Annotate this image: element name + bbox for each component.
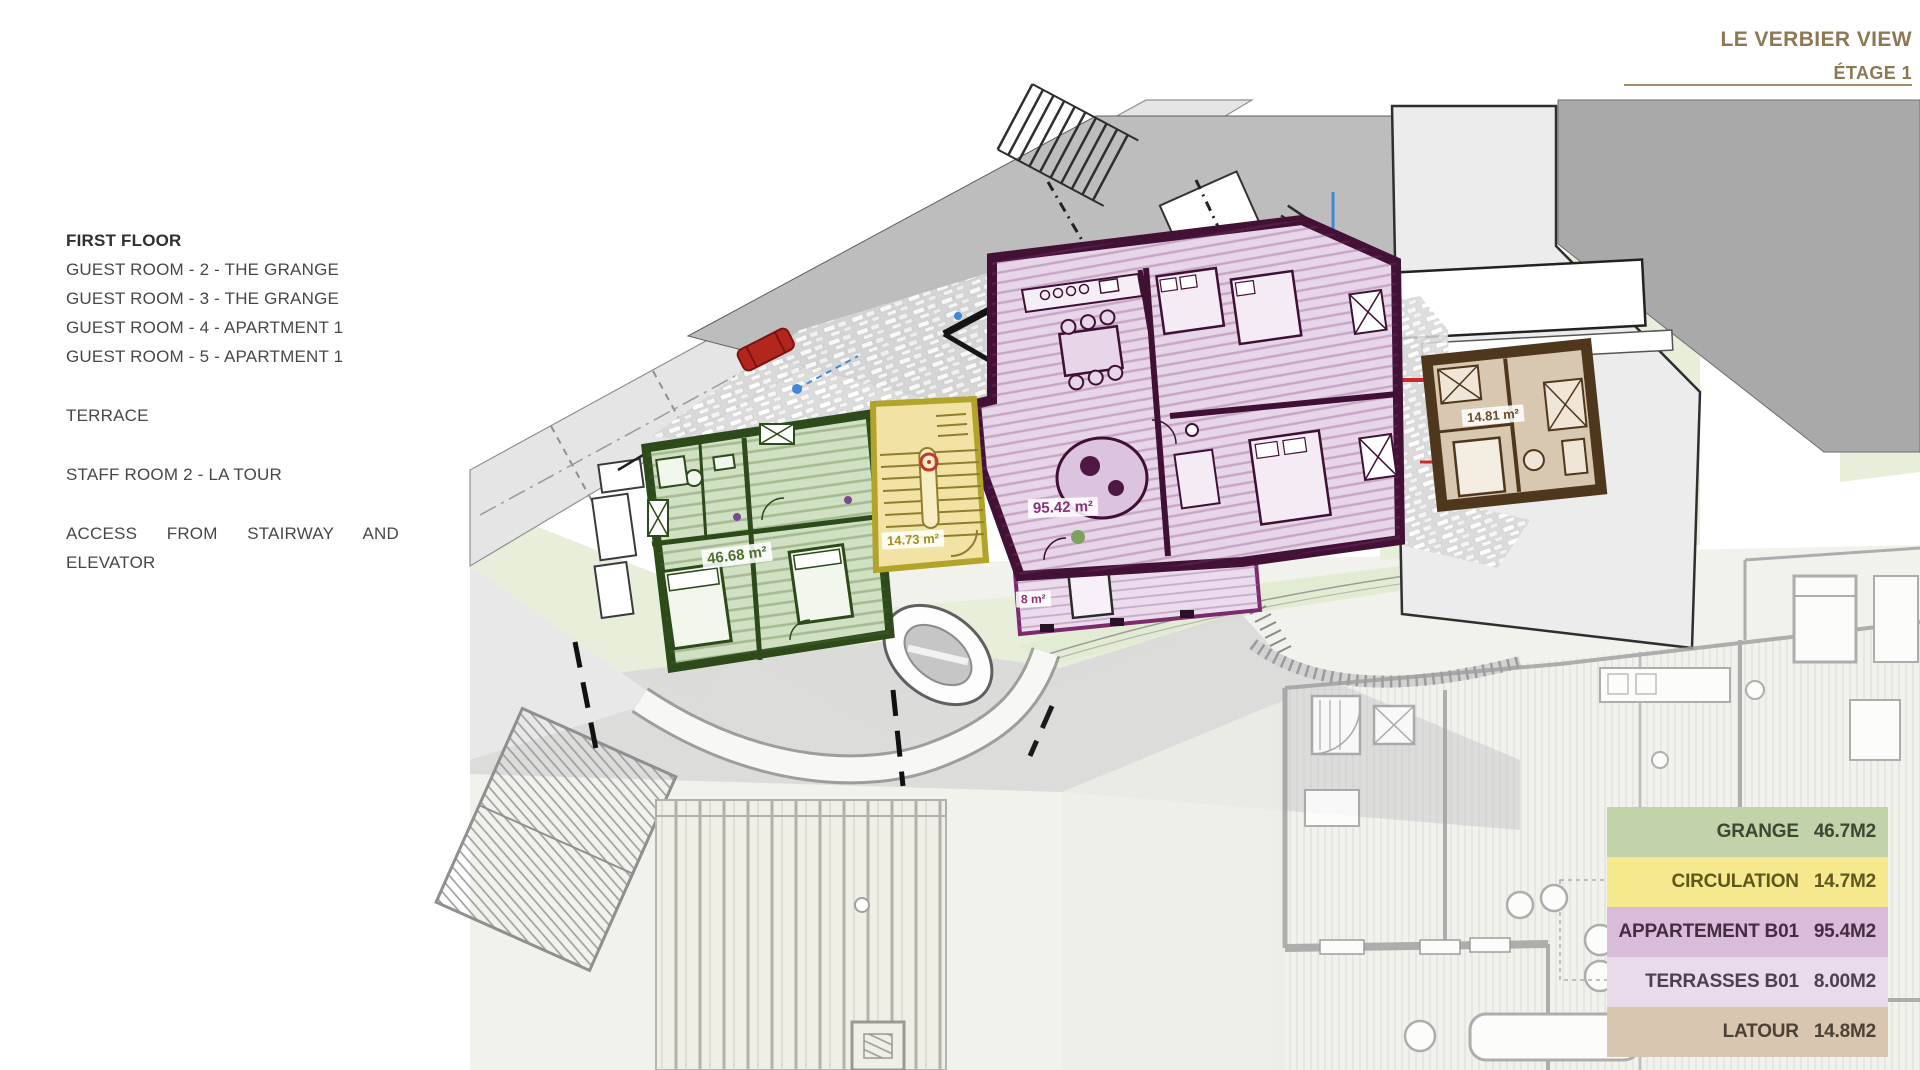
title-rule bbox=[1624, 84, 1912, 86]
floor-plan-page: LE VERBIER VIEW ÉTAGE 1 FIRST FLOOR GUES… bbox=[0, 0, 1920, 1070]
legend-label: APPARTEMENT B01 bbox=[1618, 921, 1798, 943]
legend-label: TERRASSES B01 bbox=[1645, 971, 1799, 993]
info-panel: FIRST FLOOR GUEST ROOM - 2 - THE GRANGE … bbox=[66, 226, 399, 577]
legend-value: 14.8M2 bbox=[1814, 1021, 1876, 1043]
legend-row-appartement: APPARTEMENT B01 95.4M2 bbox=[1607, 907, 1888, 957]
title-block: LE VERBIER VIEW ÉTAGE 1 bbox=[1720, 24, 1912, 84]
info-room-line: GUEST ROOM - 5 - APARTMENT 1 bbox=[66, 342, 399, 371]
floor-title: ÉTAGE 1 bbox=[1720, 63, 1912, 84]
circulation-area-label: 14.73 m² bbox=[882, 529, 945, 549]
legend-value: 14.7M2 bbox=[1814, 871, 1876, 893]
legend-row-terrasses: TERRASSES B01 8.00M2 bbox=[1607, 957, 1888, 1007]
info-staff-line: STAFF ROOM 2 - LA TOUR bbox=[66, 460, 399, 489]
info-heading: FIRST FLOOR bbox=[66, 226, 399, 255]
info-access-line2: ELEVATOR bbox=[66, 548, 399, 577]
terrace-area-label: 8 m² bbox=[1016, 590, 1051, 607]
info-room-line: GUEST ROOM - 4 - APARTMENT 1 bbox=[66, 313, 399, 342]
legend-value: 46.7M2 bbox=[1814, 821, 1876, 843]
info-room-line: GUEST ROOM - 3 - THE GRANGE bbox=[66, 284, 399, 313]
legend-value: 95.4M2 bbox=[1814, 921, 1876, 943]
info-access-line: ACCESS FROM STAIRWAY AND bbox=[66, 519, 399, 548]
apartment-area-label: 95.42 m² bbox=[1028, 497, 1099, 518]
legend-row-latour: LATOUR 14.8M2 bbox=[1607, 1007, 1888, 1057]
info-terrace-line: TERRACE bbox=[66, 401, 399, 430]
legend-label: GRANGE bbox=[1717, 821, 1799, 843]
legend-row-circulation: CIRCULATION 14.7M2 bbox=[1607, 857, 1888, 907]
legend-label: LATOUR bbox=[1723, 1021, 1799, 1043]
info-room-line: GUEST ROOM - 2 - THE GRANGE bbox=[66, 255, 399, 284]
la-tour-zone bbox=[1427, 344, 1601, 506]
legend: GRANGE 46.7M2 CIRCULATION 14.7M2 APPARTE… bbox=[1607, 807, 1888, 1057]
legend-value: 8.00M2 bbox=[1814, 971, 1876, 993]
legend-label: CIRCULATION bbox=[1672, 871, 1799, 893]
project-title: LE VERBIER VIEW bbox=[1720, 24, 1912, 57]
legend-row-grange: GRANGE 46.7M2 bbox=[1607, 807, 1888, 857]
apartment-b01-zone bbox=[976, 220, 1400, 576]
